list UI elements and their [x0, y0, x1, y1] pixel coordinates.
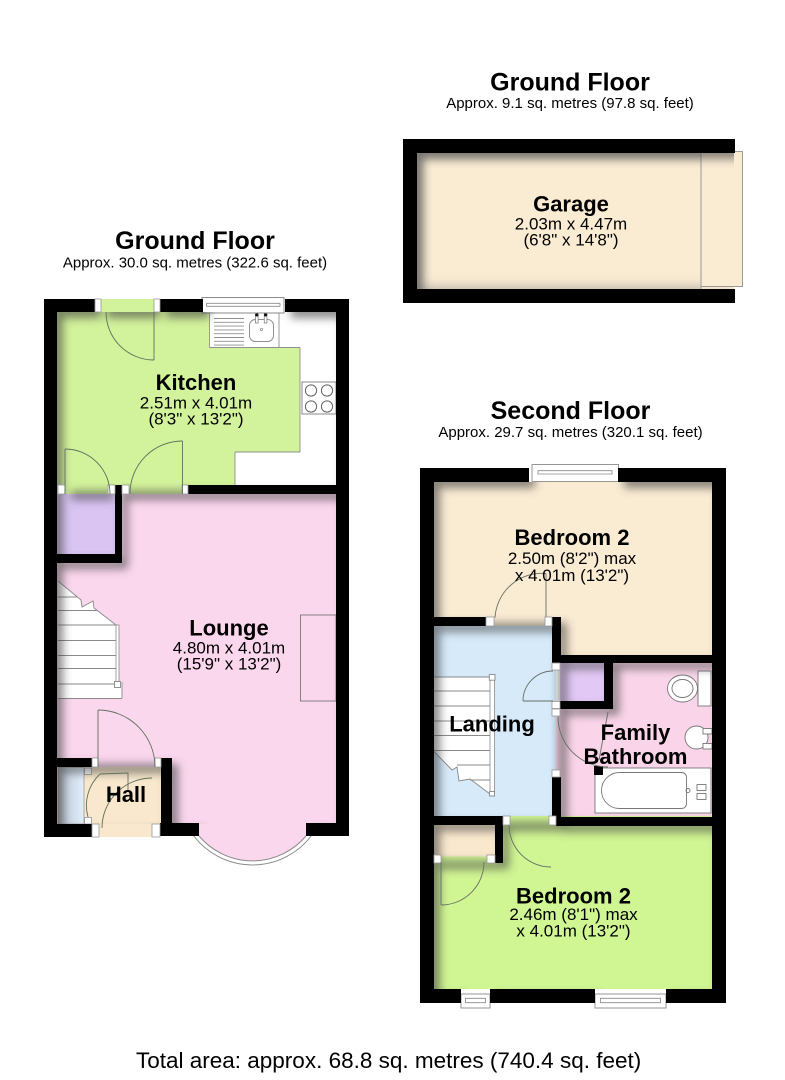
svg-text:Approx. 30.0 sq. metres (322.6: Approx. 30.0 sq. metres (322.6 sq. feet): [63, 255, 327, 272]
svg-text:Approx. 9.1 sq. metres (97.8 s: Approx. 9.1 sq. metres (97.8 sq. feet): [446, 95, 694, 112]
svg-text:Total area: approx. 68.8 sq. m: Total area: approx. 68.8 sq. metres (740…: [136, 1048, 641, 1073]
svg-text:x 4.01m (13'2"): x 4.01m (13'2"): [516, 922, 630, 941]
svg-text:Approx. 29.7 sq. metres (320.1: Approx. 29.7 sq. metres (320.1 sq. feet): [438, 424, 702, 441]
svg-text:Hall: Hall: [106, 782, 146, 807]
svg-text:Bathroom: Bathroom: [584, 744, 688, 769]
svg-text:Family: Family: [601, 720, 671, 745]
svg-text:Landing: Landing: [449, 712, 535, 737]
svg-text:Second Floor: Second Floor: [491, 397, 651, 425]
svg-text:Ground Floor: Ground Floor: [115, 227, 275, 255]
svg-text:(8'3" x 13'2"): (8'3" x 13'2"): [148, 410, 243, 429]
svg-text:Lounge: Lounge: [189, 616, 268, 641]
svg-text:Kitchen: Kitchen: [156, 370, 237, 395]
svg-text:(6'8" x 14'8"): (6'8" x 14'8"): [523, 231, 618, 250]
svg-text:x 4.01m (13'2"): x 4.01m (13'2"): [515, 566, 629, 585]
svg-text:Garage: Garage: [533, 192, 609, 217]
svg-text:Bedroom 2: Bedroom 2: [515, 525, 630, 550]
svg-text:Ground Floor: Ground Floor: [490, 69, 650, 97]
svg-text:(15'9" x 13'2"): (15'9" x 13'2"): [177, 655, 282, 674]
